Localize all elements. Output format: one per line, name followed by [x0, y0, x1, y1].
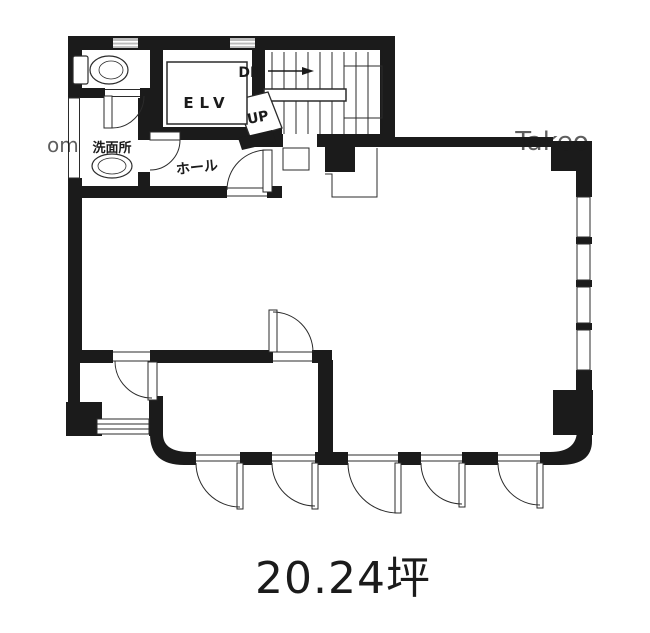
stairs-down-label: DN — [238, 65, 261, 81]
door-leaf — [459, 463, 465, 507]
door-arc — [421, 463, 462, 504]
door-arc — [196, 463, 240, 507]
stairs-down-arrow — [268, 67, 314, 75]
window-east-4 — [577, 330, 590, 370]
sink-icon — [92, 154, 132, 178]
window-louver — [97, 419, 149, 434]
door-arc — [115, 361, 152, 398]
door-arc — [272, 463, 315, 506]
staircase — [264, 52, 382, 134]
door-leaf — [537, 463, 543, 508]
entry-column — [325, 143, 355, 172]
door-leaf — [104, 96, 112, 128]
stair-rail-loop — [344, 66, 382, 118]
watermark-right: Takeo — [514, 127, 589, 157]
door-leaf — [312, 463, 318, 509]
door-leaf — [263, 150, 272, 192]
hall-label: ホール — [175, 158, 218, 178]
elevator-car — [167, 62, 247, 124]
vent-icon — [113, 38, 138, 48]
corner-column-se — [553, 390, 593, 435]
window-east-1 — [577, 197, 590, 237]
door-arc — [227, 150, 267, 190]
door-arc — [498, 463, 540, 505]
window-east-3 — [577, 287, 590, 323]
washroom-label: 洗面所 — [92, 140, 131, 156]
door-leaf — [395, 463, 401, 513]
door-arc — [348, 463, 398, 513]
pipe-shaft — [283, 148, 309, 170]
stair-rail-bar — [264, 89, 346, 101]
toilet-icon — [73, 56, 128, 84]
door-leaf — [237, 463, 243, 509]
door-leaf — [269, 310, 277, 352]
watermark-left: om — [47, 133, 79, 157]
elevator-label: ELV — [183, 94, 230, 112]
floor-plan-page: ELV DN UP 洗面所 ホール 20.24坪 om Takeo — [0, 0, 650, 633]
area-label: 20.24坪 — [255, 553, 431, 604]
vent-icon — [230, 38, 255, 48]
door-leaf — [148, 362, 157, 400]
door-leaf — [150, 132, 180, 140]
floor-plan: ELV DN UP 洗面所 ホール 20.24坪 om Takeo — [0, 0, 650, 633]
door-arc — [273, 312, 313, 352]
window-east-2 — [577, 244, 590, 280]
